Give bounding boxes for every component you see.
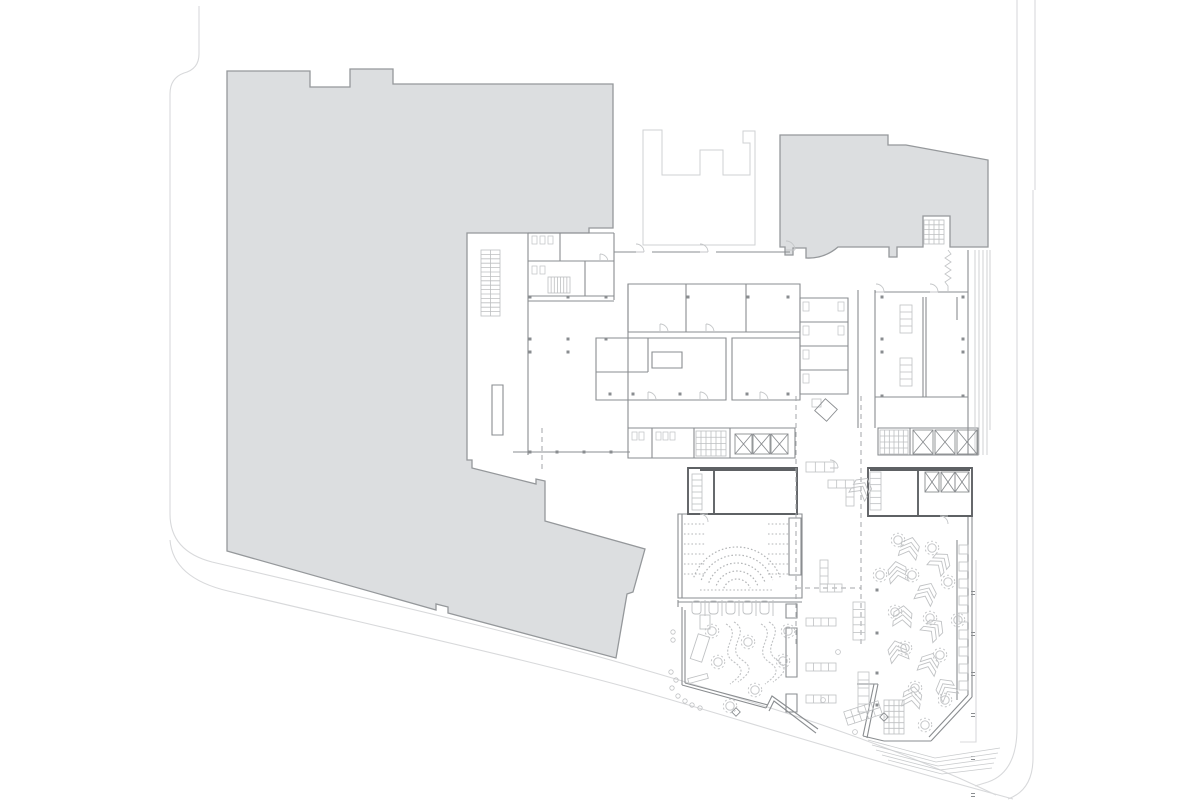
floor-plan-page bbox=[0, 0, 1200, 800]
cafe-small-tables bbox=[688, 615, 710, 684]
auditorium-seating bbox=[694, 547, 780, 588]
info-desk-diamond bbox=[732, 399, 888, 722]
context-building-north-outline bbox=[643, 130, 755, 245]
serpentine-tables bbox=[726, 622, 784, 684]
floor-plan-svg bbox=[0, 0, 1200, 800]
scatter-stools bbox=[669, 630, 858, 735]
auditorium-side-rows bbox=[684, 524, 790, 590]
study-desk-clusters bbox=[849, 474, 959, 709]
facade-mullions bbox=[975, 250, 990, 455]
elevators bbox=[735, 430, 977, 492]
context-building-northwest bbox=[227, 69, 645, 658]
context-building-northeast bbox=[780, 135, 988, 258]
walls-medium bbox=[492, 233, 978, 741]
terrace-steps bbox=[868, 740, 1000, 774]
